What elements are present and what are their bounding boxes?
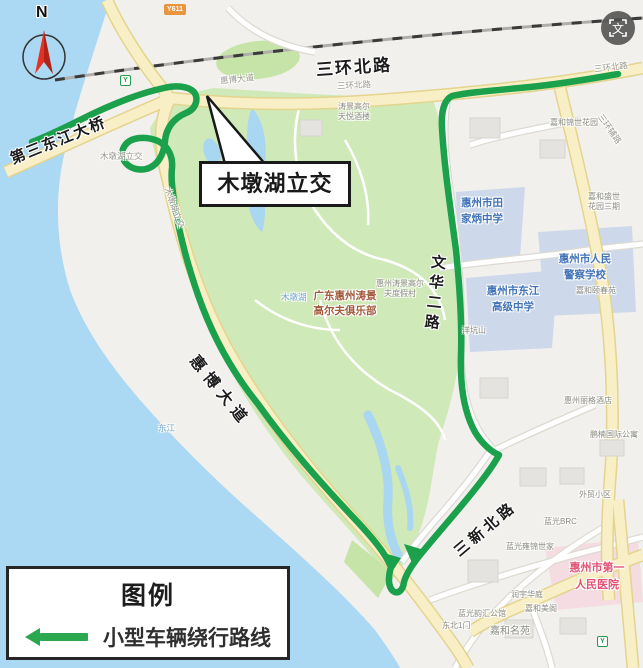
- detour-route-arrow-icon: [25, 628, 91, 646]
- detour-map: N Y611 Y Y 文 三环北路 第三东江大桥 惠博大道 文华二路 三新北路 …: [0, 0, 643, 668]
- water-label-dongjiang-river: 东江: [158, 423, 175, 434]
- place-label-languang-brc: 蓝光BRC: [544, 517, 577, 527]
- place-label-taojing-hotel: 涛景高尔 天悦酒楼: [334, 102, 374, 122]
- interchange-callout: 木墩湖立交: [199, 161, 351, 207]
- place-label-languang-yongjin: 蓝光雍锦世家: [506, 542, 554, 552]
- translate-icon: 文: [598, 8, 638, 48]
- place-label-jiahe-mingyuan: 嘉和名苑: [490, 626, 530, 639]
- place-label-first-peoples-hospital: 惠州市第一 人民医院: [553, 560, 641, 593]
- place-label-police-school: 惠州市人民 警察学校: [540, 252, 630, 284]
- transit-station-icon: Y: [120, 75, 131, 86]
- svg-text:文: 文: [612, 21, 624, 36]
- place-label-waimao: 外贸小区: [579, 490, 611, 500]
- place-label-lige-hotel: 惠州丽格酒店: [564, 396, 612, 406]
- place-label-jiahe-meige: 嘉和美阁: [525, 604, 557, 614]
- place-label-dongbei-gate: 东北1门: [442, 621, 470, 631]
- onroad-label-mudun-interchange: 木墩湖立交: [100, 151, 143, 162]
- transit-station-icon-2: Y: [597, 636, 608, 647]
- place-label-tianjiabing-school: 惠州市田 家炳中学: [446, 196, 518, 228]
- place-label-golf-resort: 惠州涛景高尔 夫度假村: [372, 279, 428, 299]
- compass-north-label: N: [36, 3, 48, 23]
- place-label-jiahe-shengshi: 嘉和盛世 花园三期: [584, 192, 624, 212]
- onroad-label-sanhuan: 三环北路: [337, 79, 372, 91]
- road-number-badge: Y611: [164, 4, 186, 15]
- translate-button[interactable]: 文: [598, 8, 638, 48]
- place-label-yangkengshan: 洋坑山: [462, 326, 486, 336]
- legend-row: 小型车辆绕行路线: [25, 622, 287, 652]
- place-label-jiahe-yichun: 嘉和颐春苑: [576, 286, 616, 296]
- place-label-jiahe-jinshi: 嘉和锦世花园: [550, 118, 598, 128]
- place-label-pengnan-apartments: 鹏楠国际公寓: [590, 430, 638, 440]
- water-label-mudun-lake: 木墩湖: [281, 292, 307, 303]
- place-label-dongjiang-school: 惠州市东江 高级中学: [468, 284, 558, 316]
- place-label-languang-yunhui: 蓝光韵汇公馆: [458, 609, 506, 619]
- legend-route-label: 小型车辆绕行路线: [103, 622, 271, 652]
- legend-title: 图例: [9, 576, 287, 612]
- legend-box: 图例 小型车辆绕行路线: [6, 566, 290, 660]
- place-label-runyu: 润宇华庭: [511, 590, 543, 600]
